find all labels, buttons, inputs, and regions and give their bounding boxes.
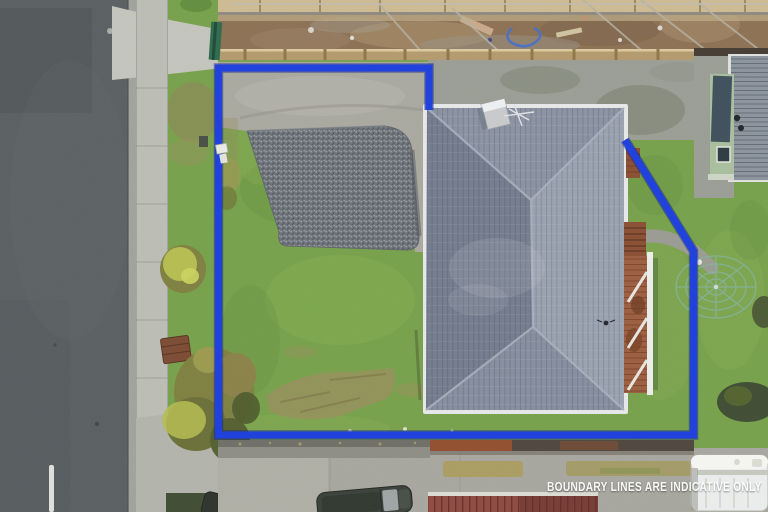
photo-grain bbox=[0, 0, 768, 512]
aerial-photo: BOUNDARY LINES ARE INDICATIVE ONLY bbox=[0, 0, 768, 512]
watermark-text: BOUNDARY LINES ARE INDICATIVE ONLY bbox=[547, 479, 762, 494]
